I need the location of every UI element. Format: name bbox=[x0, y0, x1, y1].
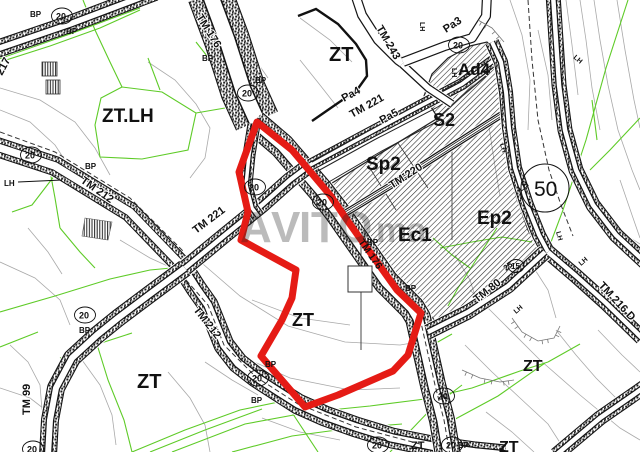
svg-text:BP: BP bbox=[85, 162, 97, 171]
svg-text:BP: BP bbox=[265, 360, 277, 369]
svg-text:Sp2: Sp2 bbox=[366, 154, 401, 175]
svg-text:ZT: ZT bbox=[137, 371, 161, 393]
svg-text:LH: LH bbox=[418, 22, 425, 31]
svg-text:V: V bbox=[271, 203, 301, 252]
svg-text:20: 20 bbox=[372, 441, 382, 451]
svg-text:TM 99: TM 99 bbox=[21, 384, 33, 415]
svg-text:Ec1: Ec1 bbox=[398, 225, 432, 246]
svg-text:ZT: ZT bbox=[499, 439, 519, 452]
svg-text:LH: LH bbox=[450, 68, 457, 77]
svg-text:A: A bbox=[240, 203, 272, 252]
svg-text:20: 20 bbox=[79, 311, 89, 321]
svg-text:20: 20 bbox=[25, 151, 35, 161]
svg-text:LH: LH bbox=[4, 179, 15, 188]
svg-text:Ep2: Ep2 bbox=[477, 208, 512, 229]
svg-text:20: 20 bbox=[56, 12, 66, 22]
svg-text:BP: BP bbox=[367, 238, 379, 247]
svg-text:BP: BP bbox=[251, 396, 263, 405]
svg-text:20: 20 bbox=[453, 41, 463, 51]
svg-text:ZT: ZT bbox=[329, 44, 353, 66]
svg-text:20: 20 bbox=[249, 183, 259, 193]
svg-text:20: 20 bbox=[438, 392, 448, 402]
svg-text:ZT: ZT bbox=[411, 440, 425, 452]
svg-text:S2: S2 bbox=[433, 110, 455, 130]
svg-text:BP: BP bbox=[405, 284, 417, 293]
svg-text:BP: BP bbox=[202, 54, 214, 63]
svg-text:I: I bbox=[299, 203, 311, 252]
svg-text:20: 20 bbox=[446, 441, 456, 451]
svg-text:20: 20 bbox=[242, 89, 252, 99]
svg-text:BP: BP bbox=[30, 10, 42, 19]
svg-text:20: 20 bbox=[252, 374, 262, 384]
svg-text:15: 15 bbox=[511, 262, 520, 271]
svg-text:ZT: ZT bbox=[292, 310, 314, 330]
svg-text:Ad4: Ad4 bbox=[458, 60, 491, 79]
svg-text:20: 20 bbox=[27, 445, 37, 452]
svg-text:BP: BP bbox=[458, 441, 470, 450]
svg-text:50: 50 bbox=[534, 178, 557, 201]
svg-text:ZT.LH: ZT.LH bbox=[102, 106, 154, 127]
svg-text:20: 20 bbox=[317, 198, 327, 208]
svg-text:BP: BP bbox=[255, 76, 267, 85]
svg-text:ZT: ZT bbox=[523, 358, 543, 375]
svg-text:BP: BP bbox=[79, 326, 91, 335]
svg-text:BP: BP bbox=[66, 27, 78, 36]
